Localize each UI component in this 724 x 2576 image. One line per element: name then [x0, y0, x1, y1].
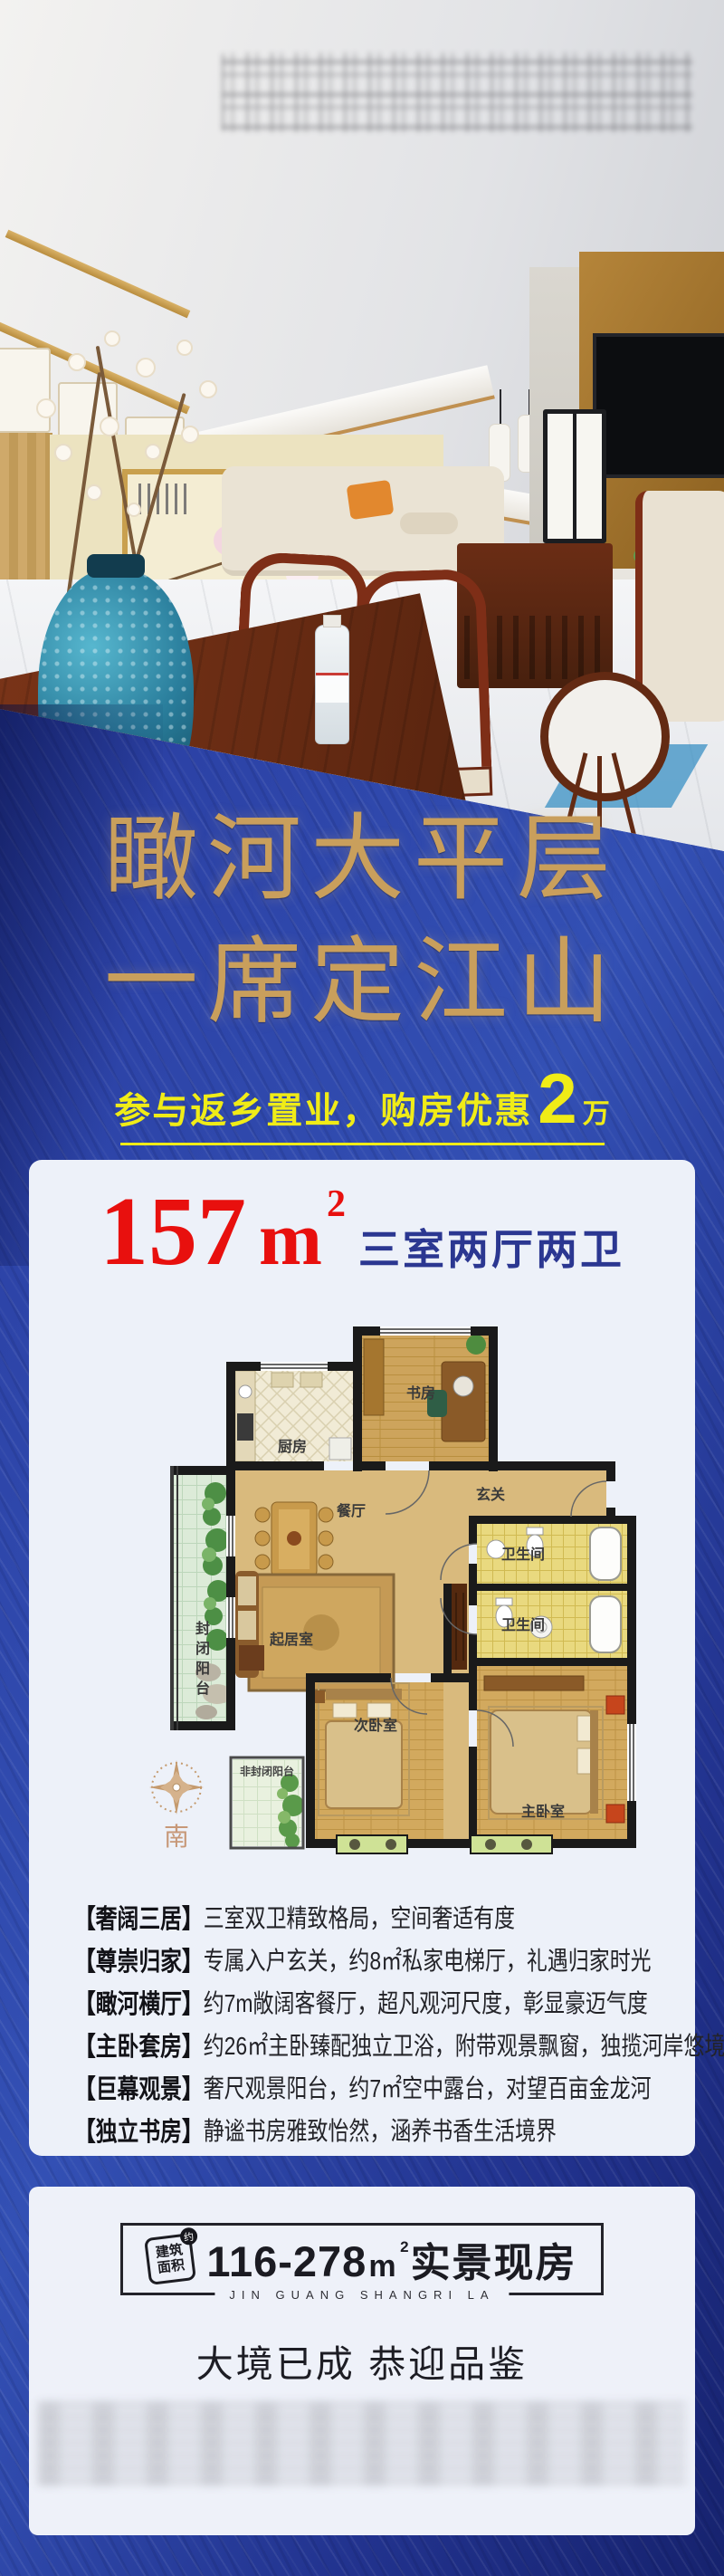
- promo-unit: 万: [583, 1091, 610, 1131]
- area-range-box: 建筑 面积 约 116-278 m2 实景现房 JIN GUANG SHANGR…: [120, 2223, 604, 2295]
- label-entry: 玄关: [476, 1482, 505, 1504]
- label-kitchen: 厨房: [278, 1434, 307, 1456]
- tv-screen: [593, 333, 724, 478]
- stamp-badge: 约: [179, 2226, 198, 2246]
- feature-row: 【奢阔三居】 三室双卫精致格局，空间奢适有度: [74, 1895, 564, 1938]
- lantern-lamp: [543, 409, 606, 543]
- feature-tag: 【尊崇归家】: [74, 1940, 204, 1978]
- feature-row: 【巨幕观景】 奢尺观景阳台，约7㎡空中露台，对望百亩金龙河: [74, 2065, 564, 2108]
- label-bath-lower: 卫生间: [501, 1613, 545, 1634]
- area-range: 116-278 m2 实景现房: [206, 2230, 576, 2288]
- floor-plan: 厨房 书房 餐厅 玄关 卫生间 卫生间 起居室 次卧室 主卧室 封闭阳台 非封闭…: [81, 1312, 643, 1861]
- stamp-line2: 面积: [157, 2257, 186, 2276]
- latin-subtitle: JIN GUANG SHANGRI LA: [214, 2288, 509, 2302]
- area-heading: 157 m2 三室两厅两卫: [29, 1183, 695, 1281]
- blurred-disclaimer: [38, 2402, 686, 2485]
- range-numbers: 116-278: [206, 2236, 367, 2286]
- label-bedroom-second: 次卧室: [354, 1713, 397, 1735]
- feature-tag: 【主卧套房】: [74, 2025, 204, 2064]
- feature-desc: 奢尺观景阳台，约7㎡空中露台，对望百亩金龙河: [204, 2069, 652, 2105]
- promo-underline: [120, 1143, 605, 1145]
- blossom-branches: [0, 317, 290, 589]
- label-living: 起居室: [270, 1627, 313, 1649]
- label-balcony-enclosed: 封闭阳台: [189, 1621, 211, 1700]
- feature-row: 【尊崇归家】 专属入户玄关，约8㎡私家电梯厅，礼遇归家时光: [74, 1938, 564, 1980]
- feature-desc: 专属入户玄关，约8㎡私家电梯厅，礼遇归家时光: [204, 1941, 652, 1977]
- feature-desc: 静谧书房雅致怡然，涵养书香生活境界: [204, 2112, 557, 2148]
- poster-page: 瞰河大平层 一席定江山 参与返乡置业，购房优惠 2 万 157 m2 三室两厅两…: [0, 0, 724, 2576]
- bolster-pillow: [400, 512, 458, 534]
- label-study: 书房: [406, 1381, 435, 1403]
- promo-text: 参与返乡置业，购房优惠: [114, 1081, 532, 1134]
- blurred-watermark: [222, 53, 692, 132]
- compass-icon: [149, 1760, 204, 1815]
- label-bedroom-master: 主卧室: [521, 1799, 565, 1821]
- range-unit: m2: [368, 2249, 395, 2284]
- feature-list: 【奢阔三居】 三室双卫精致格局，空间奢适有度 【尊崇归家】 专属入户玄关，约8㎡…: [74, 1895, 672, 2150]
- floor-plan-drawing: [81, 1312, 643, 1861]
- headline-line1: 瞰河大平层: [0, 809, 724, 912]
- headline-line2: 一席定江山: [0, 932, 724, 1035]
- round-side-table: [540, 672, 670, 801]
- feature-desc: 约7m敞阔客餐厅，超凡观河尺度，彰显豪迈气度: [204, 1984, 648, 2020]
- area-number: 157: [100, 1183, 246, 1281]
- label-bath-upper: 卫生间: [501, 1542, 545, 1564]
- feature-tag: 【瞰河横厅】: [74, 1983, 204, 2021]
- area-stamp: 建筑 面积 约: [144, 2233, 196, 2285]
- feature-row: 【瞰河横厅】 约7m敞阔客餐厅，超凡观河尺度，彰显豪迈气度: [74, 1980, 564, 2023]
- label-balcony-open: 非封闭阳台: [240, 1764, 294, 1779]
- label-south: 南: [164, 1817, 189, 1853]
- water-bottle: [315, 625, 349, 744]
- blue-vase-neck: [87, 554, 145, 578]
- footer-card: 建筑 面积 约 116-278 m2 实景现房 JIN GUANG SHANGR…: [29, 2187, 695, 2535]
- unit-card: 157 m2 三室两厅两卫: [29, 1160, 695, 2156]
- headline: 瞰河大平层 一席定江山: [0, 809, 724, 1036]
- closing-line: 大境已成 恭迎品鉴: [29, 2333, 695, 2388]
- feature-tag: 【巨幕观景】: [74, 2068, 204, 2106]
- feature-row: 【主卧套房】 约26㎡主卧臻配独立卫浴，附带观景飘窗，独揽河岸悠境: [74, 2023, 564, 2065]
- range-label: 实景现房: [400, 2230, 577, 2288]
- layout-label: 三室两厅两卫: [335, 1217, 624, 1277]
- feature-desc: 约26㎡主卧臻配独立卫浴，附带观景飘窗，独揽河岸悠境: [204, 2026, 724, 2063]
- feature-tag: 【独立书房】: [74, 2111, 204, 2149]
- armchair: [635, 491, 724, 722]
- label-dining: 餐厅: [337, 1499, 366, 1520]
- feature-tag: 【奢阔三居】: [74, 1898, 204, 1936]
- area-unit: m2: [259, 1202, 322, 1278]
- feature-row: 【独立书房】 静谧书房雅致怡然，涵养书香生活境界: [74, 2108, 564, 2150]
- feature-desc: 三室双卫精致格局，空间奢适有度: [204, 1899, 515, 1935]
- orange-pillow: [347, 480, 395, 520]
- promo-banner: 参与返乡置业，购房优惠 2 万: [0, 1067, 724, 1145]
- promo-highlight: 2: [538, 1067, 576, 1130]
